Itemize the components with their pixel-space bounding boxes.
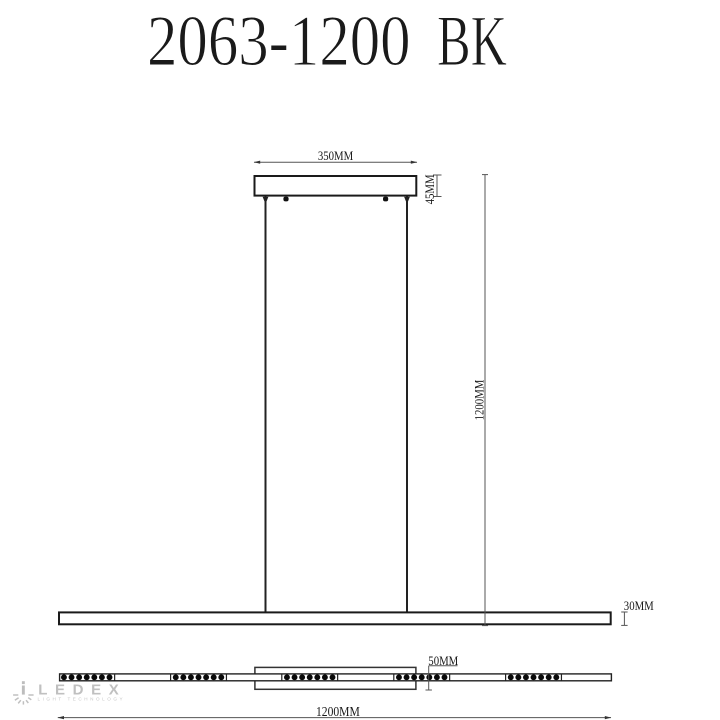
svg-text:BK: BK: [437, 2, 507, 81]
svg-text:1200MM: 1200MM: [472, 379, 487, 420]
svg-text:350MM: 350MM: [318, 148, 354, 163]
svg-text:LIGHT TECHNOLOGY: LIGHT TECHNOLOGY: [38, 697, 126, 702]
svg-text:30MM: 30MM: [624, 598, 654, 613]
svg-text:2063-1200: 2063-1200: [147, 2, 411, 81]
svg-text:45MM: 45MM: [422, 174, 437, 204]
